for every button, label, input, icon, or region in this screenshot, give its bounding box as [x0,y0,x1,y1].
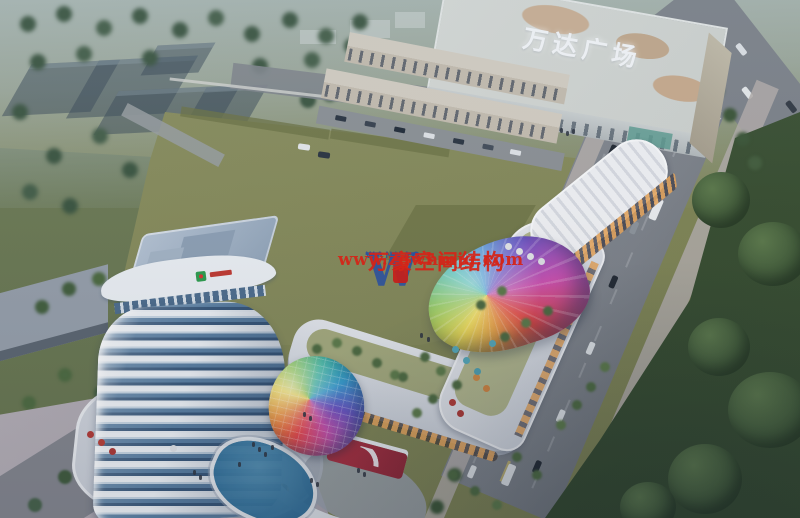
large-tree [738,222,800,286]
watermark: W WANHAO 万豪空间结构 www.zgwhmjg.com [366,250,596,314]
watermark-website: www.zgwhmjg.com [338,250,524,270]
large-tree [668,444,742,514]
aerial-rendering-scene: 万达广场 [0,0,800,518]
parked-cars [317,112,329,119]
pedestrians [0,0,3,5]
large-tree [688,318,750,376]
large-tree [692,172,750,228]
distant-white-building [395,12,425,28]
tower-brand-wordmark [210,270,232,278]
